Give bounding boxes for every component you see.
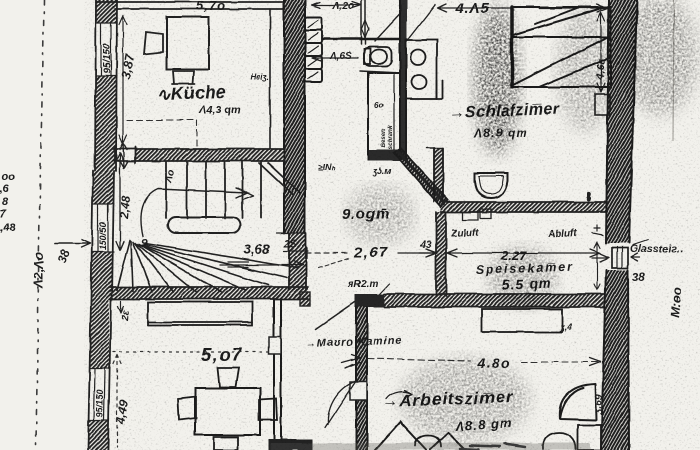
svg-text:,6: ,6 bbox=[0, 183, 10, 195]
svg-text:8: 8 bbox=[2, 196, 9, 208]
svg-text:,48: ,48 bbox=[0, 222, 16, 234]
svg-text:oo: oo bbox=[2, 171, 16, 183]
svg-text:7: 7 bbox=[0, 208, 7, 220]
svg-text:Λ2,Λo: Λ2,Λo bbox=[31, 252, 46, 289]
